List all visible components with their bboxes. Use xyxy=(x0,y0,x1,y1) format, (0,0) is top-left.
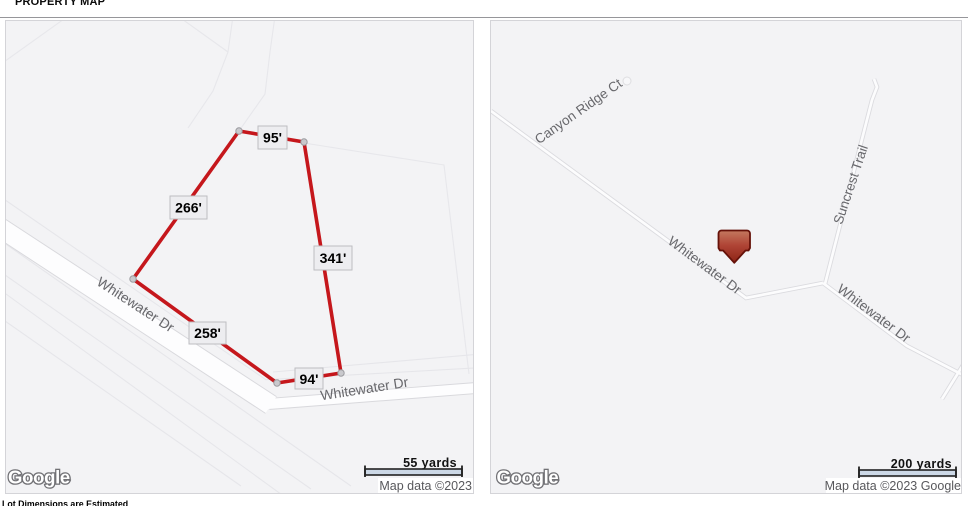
svg-text:94': 94' xyxy=(300,371,319,387)
svg-text:341': 341' xyxy=(320,250,347,266)
svg-text:Google: Google xyxy=(497,467,559,488)
svg-text:Google: Google xyxy=(8,467,70,488)
svg-text:200 yards: 200 yards xyxy=(891,457,952,471)
svg-text:Map data ©2023: Map data ©2023 xyxy=(379,479,472,493)
svg-text:Suncrest Trail: Suncrest Trail xyxy=(831,143,871,226)
svg-text:Whitewater Dr: Whitewater Dr xyxy=(834,281,913,346)
svg-text:Canyon Ridge Ct: Canyon Ridge Ct xyxy=(532,76,625,147)
svg-text:Map data ©2023 Google: Map data ©2023 Google xyxy=(825,479,961,493)
svg-text:55 yards: 55 yards xyxy=(403,456,457,470)
svg-text:95': 95' xyxy=(263,130,282,146)
svg-text:258': 258' xyxy=(194,325,221,341)
svg-text:266': 266' xyxy=(175,200,202,216)
